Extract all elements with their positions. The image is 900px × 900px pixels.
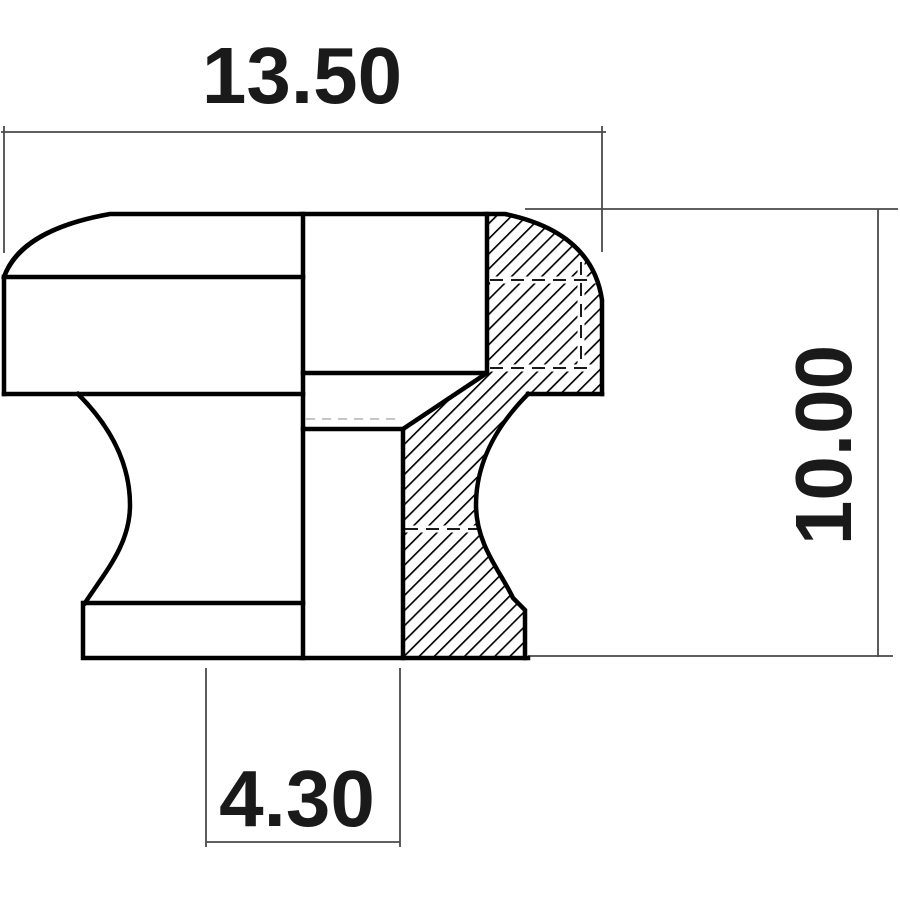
width-dimension-label: 13.50: [202, 36, 402, 116]
technical-drawing-canvas: 13.50 10.00 4.30: [0, 0, 900, 900]
neck-curve-left: [78, 394, 130, 603]
part-cross-section-drawing: [0, 0, 900, 900]
hole-diameter-dimension-label: 4.30: [219, 759, 375, 839]
height-dimension-label: 10.00: [784, 345, 864, 545]
